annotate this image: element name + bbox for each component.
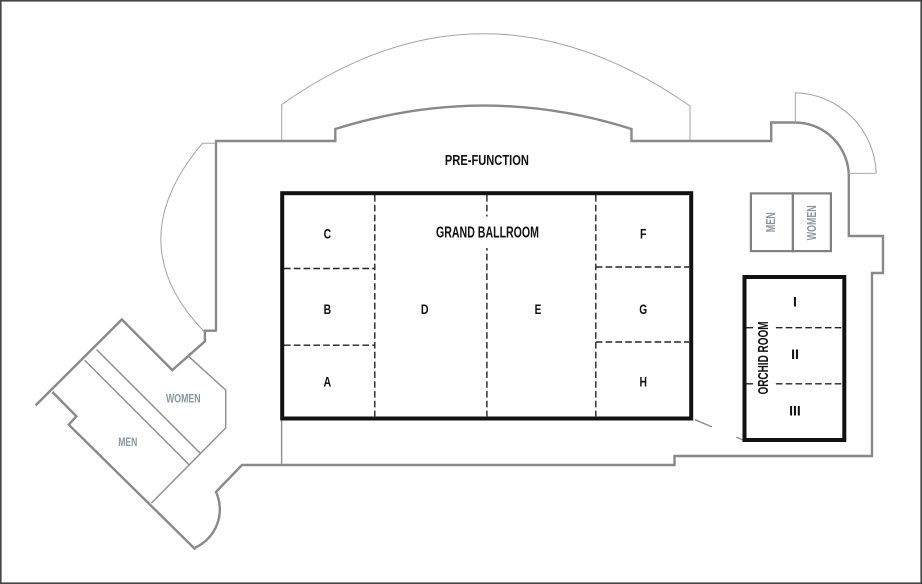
svg-text:PRE-FUNCTION: PRE-FUNCTION — [445, 152, 529, 169]
svg-text:WOMEN: WOMEN — [804, 205, 819, 240]
svg-text:MEN: MEN — [118, 437, 137, 449]
svg-text:II: II — [791, 346, 799, 362]
svg-text:D: D — [421, 301, 429, 317]
svg-text:A: A — [324, 373, 332, 389]
svg-text:E: E — [535, 301, 542, 317]
svg-text:I: I — [793, 293, 797, 309]
svg-text:H: H — [639, 373, 647, 389]
svg-text:C: C — [324, 226, 332, 242]
svg-text:F: F — [640, 226, 647, 242]
svg-text:MEN: MEN — [763, 212, 778, 232]
svg-text:III: III — [789, 402, 801, 418]
svg-text:WOMEN: WOMEN — [166, 394, 201, 406]
svg-text:G: G — [639, 301, 647, 317]
svg-text:GRAND BALLROOM: GRAND BALLROOM — [436, 225, 539, 242]
svg-text:ORCHID ROOM: ORCHID ROOM — [755, 322, 772, 395]
svg-text:B: B — [324, 301, 332, 317]
